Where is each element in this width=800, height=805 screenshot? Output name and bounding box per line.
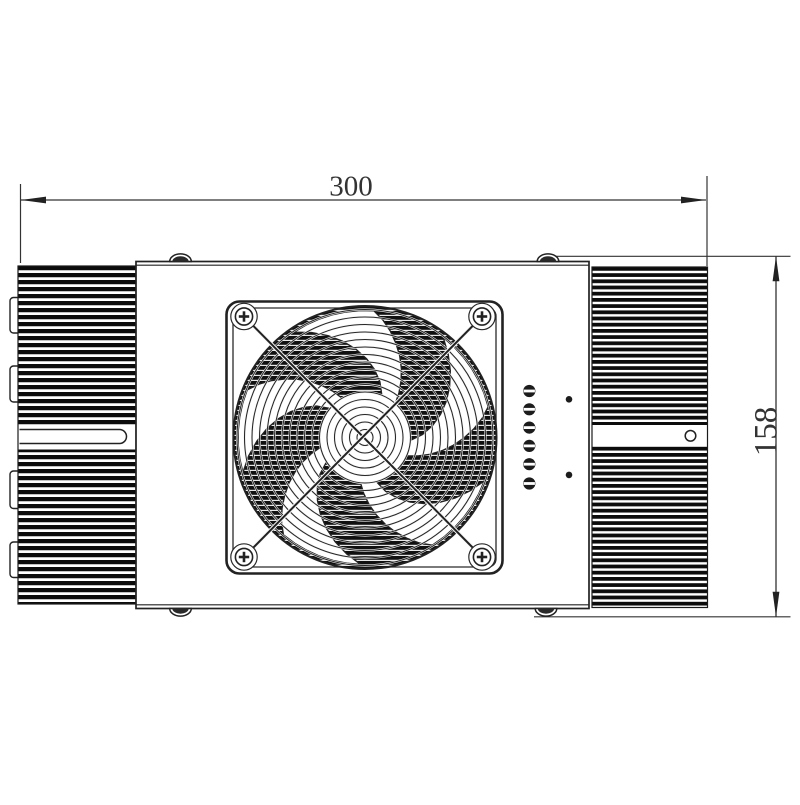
svg-text:300: 300 [329, 171, 373, 203]
svg-text:158: 158 [749, 407, 785, 457]
